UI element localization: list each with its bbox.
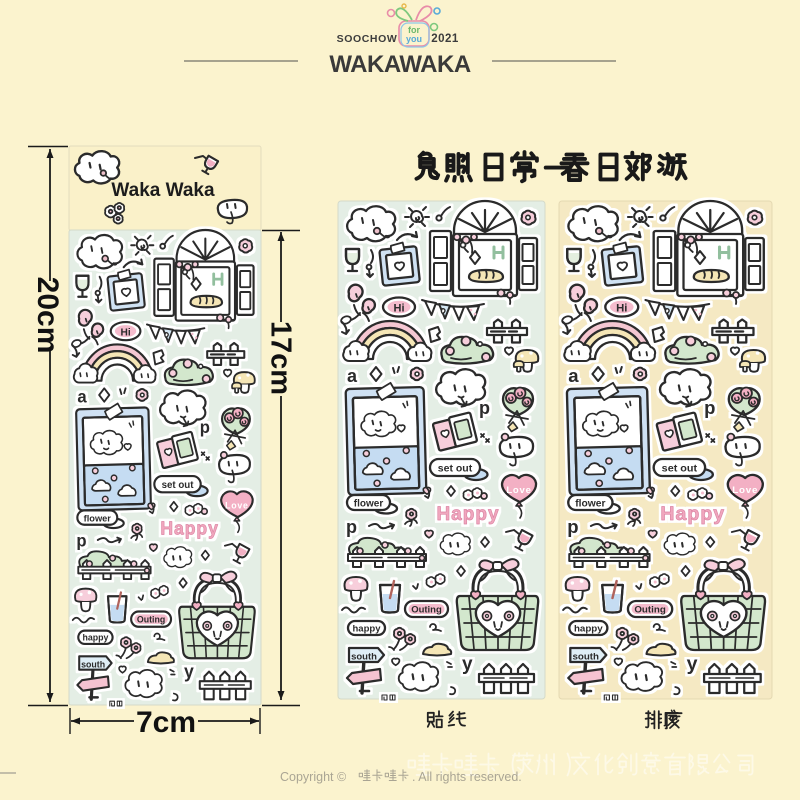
svg-text:20cm: 20cm bbox=[31, 277, 64, 354]
svg-text:SOOCHOW: SOOCHOW bbox=[337, 33, 398, 45]
svg-text:Waka Waka: Waka Waka bbox=[111, 180, 215, 201]
svg-text:WAKAWAKA: WAKAWAKA bbox=[329, 51, 470, 78]
svg-text:Copyright ©: Copyright © bbox=[280, 770, 347, 784]
svg-text:17cm: 17cm bbox=[264, 321, 296, 395]
svg-text:. All rights reserved.: . All rights reserved. bbox=[412, 770, 522, 784]
svg-text:2021: 2021 bbox=[431, 33, 459, 45]
svg-text:you: you bbox=[406, 34, 422, 44]
svg-text:7cm: 7cm bbox=[136, 706, 196, 739]
